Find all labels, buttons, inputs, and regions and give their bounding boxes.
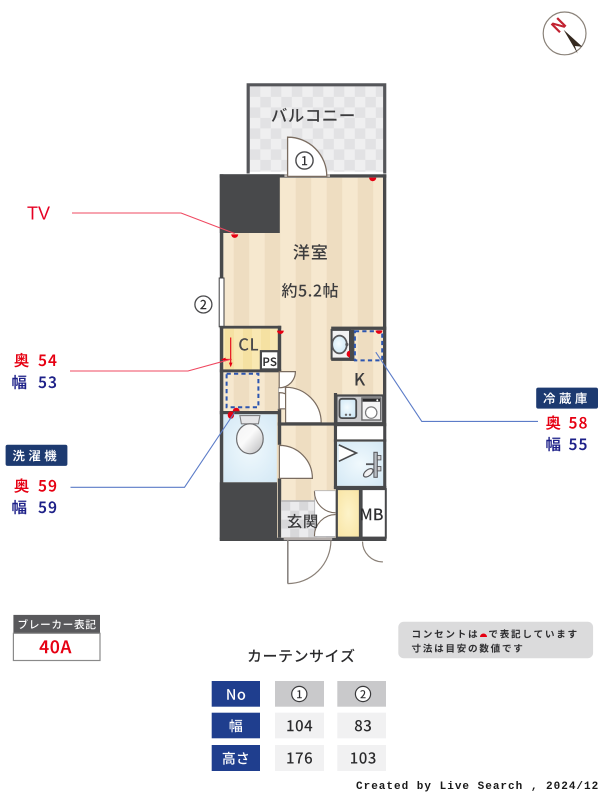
svg-text:TV: TV [27, 204, 50, 224]
svg-text:Created by Live Search , 2024/: Created by Live Search , 2024/12 [356, 781, 599, 793]
